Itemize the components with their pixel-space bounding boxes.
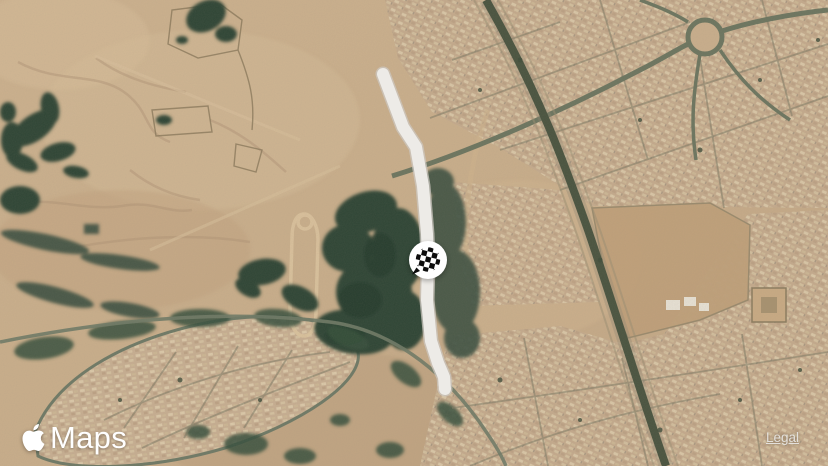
- imagery-grain: [0, 0, 828, 466]
- legal-link[interactable]: Legal: [766, 430, 799, 445]
- destination-marker[interactable]: [409, 241, 448, 282]
- maps-logo: Maps: [20, 422, 127, 453]
- apple-logo-icon: [20, 424, 47, 451]
- satellite-map-canvas[interactable]: [0, 0, 828, 466]
- maps-logo-text: Maps: [50, 422, 127, 453]
- maps-window: Maps Legal: [0, 0, 828, 466]
